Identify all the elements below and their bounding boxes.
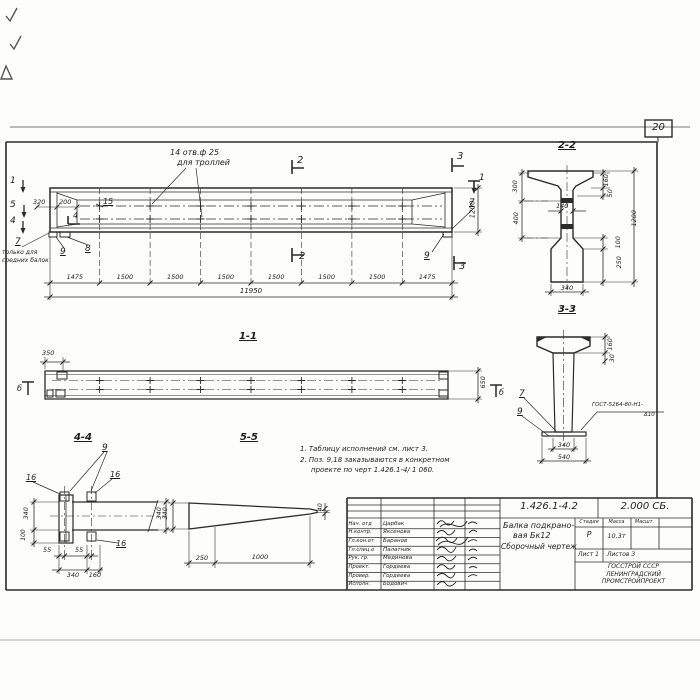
cut-mark-b-right: б <box>499 389 504 397</box>
holes-note-line1: 14 отв.ф 25 <box>170 149 219 157</box>
dim-segment: 1500 <box>360 274 394 281</box>
pos7-note-line1: только для <box>2 250 37 256</box>
drawing-sheet: 20 1 5 4 4 2 2 3 3 1 320 200 15 14 отв.ф… <box>0 0 700 700</box>
pos-label-8: 8 <box>85 245 91 254</box>
section-5-5-title: 5-5 <box>232 433 266 443</box>
signature-marks <box>436 521 477 586</box>
cut-mark-2-bottom: 2 <box>299 252 305 262</box>
dim-400: 400 <box>513 205 520 231</box>
dim-350: 350 <box>42 350 54 357</box>
weld-callout-line2: Δ10 <box>644 413 655 419</box>
org-line-3: ПРОМСТРОЙПРОЕКТ <box>575 579 692 585</box>
dim-segment: 1475 <box>58 274 92 281</box>
dim-340-44-bottom: 340 <box>60 572 86 579</box>
tb-row-name: Бодович <box>383 582 407 588</box>
tb-row-role: Рук. гр. <box>349 556 369 561</box>
dim-30: 30 <box>609 347 616 369</box>
tb-row-role: Нач. отд <box>349 522 372 527</box>
section-1-1-view <box>22 357 502 403</box>
drawing-title-line1: Балка подкрано- <box>503 522 574 530</box>
cut-mark-b-left: б <box>17 385 22 393</box>
corner-marks <box>1 8 21 79</box>
drawing-linework <box>0 0 700 700</box>
tb-row-name: Мединова <box>383 556 412 562</box>
tb-row-role: Н.контр. <box>349 530 372 535</box>
tb-row-name: Яксенова <box>383 530 410 536</box>
section-2-2-title: 2-2 <box>552 141 582 151</box>
weld-callout-line1: ГОСТ-5264-80-Н1- <box>592 403 643 409</box>
dim-200: 200 <box>59 199 71 206</box>
tb-row-role: Провер. <box>349 574 371 579</box>
dim-segment: 1500 <box>108 274 142 281</box>
dim-340-33: 340 <box>549 442 579 449</box>
pos-label-9-33: 9 <box>517 408 523 417</box>
dim-140-web: 140 <box>556 203 568 210</box>
sheets-label: Листов 3 <box>607 552 635 558</box>
section-3-3-view <box>522 330 664 464</box>
dim-340-22: 340 <box>552 285 582 292</box>
doc-number: 1.426.1-4.2 <box>500 502 598 512</box>
dim-320: 320 <box>33 199 45 206</box>
section-1-1-title: 1-1 <box>232 332 264 342</box>
tb-row-name: Царбак <box>383 522 404 528</box>
tb-row-name: Баранов <box>383 539 407 545</box>
section-4-4-title: 4-4 <box>66 433 100 443</box>
mass-header: Масса <box>603 520 630 525</box>
drawing-title-line3: Сборочный чертеж <box>501 543 577 551</box>
pos7-note-line2: средних балок <box>2 258 49 264</box>
pos-label-16-a: 16 <box>26 474 36 482</box>
pos-label-9-right: 9 <box>424 252 430 261</box>
note-line-3: проекте по черт 1.426.1-4/ 1 060. <box>311 467 434 474</box>
dim-540: 540 <box>549 454 579 461</box>
dim-250: 250 <box>616 249 623 275</box>
dim-55-b: 55 <box>75 547 83 554</box>
dim-segment: 1500 <box>259 274 293 281</box>
pos-label-9: 9 <box>60 248 66 257</box>
pos-label-16-c: 16 <box>116 540 126 548</box>
holes-note-line2: для троллей <box>177 159 230 167</box>
pos-label-15: 15 <box>103 198 113 206</box>
sheet-number: 20 <box>645 123 672 133</box>
cut-mark-2-top: 2 <box>297 156 303 166</box>
cut-mark-4-inner: 4 <box>73 212 78 220</box>
section-3-3-title: 3-3 <box>552 305 582 315</box>
dim-total-11950: 11950 <box>231 288 271 295</box>
drawing-title-line2: вая Бк12 <box>513 532 550 540</box>
dim-300: 300 <box>512 173 519 199</box>
pos-label-16-b: 16 <box>110 471 120 479</box>
sheet-label: Лист 1 <box>578 552 599 558</box>
dim-100-44: 100 <box>21 524 27 546</box>
doc-code: 2.000 СБ. <box>598 502 692 512</box>
scale-header: Масшт. <box>631 520 658 525</box>
cut-mark-1-right: 1 <box>479 174 485 183</box>
stage-value: Р <box>576 531 602 539</box>
cut-mark-4-left: 4 <box>10 217 16 226</box>
dim-340-55: 340 <box>162 500 169 526</box>
dim-250-55: 250 <box>189 555 215 562</box>
tb-row-role: Гл.кон.от <box>349 539 374 544</box>
dim-1200-22: 1200 <box>631 204 638 232</box>
pos-label-7-33: 7 <box>519 390 525 399</box>
note-line-2: 2. Поз. 9,18 заказываются в конкретном <box>300 457 450 464</box>
cut-mark-1-left: 1 <box>10 177 16 186</box>
org-line-1: ГОССТРОЙ СССР <box>575 564 692 570</box>
dim-segment: 1500 <box>158 274 192 281</box>
dim-1200-elevation: 1200 <box>470 196 477 224</box>
tb-row-role: Гл.спец.о <box>349 548 375 553</box>
dim-segment: 1500 <box>310 274 344 281</box>
org-line-2: ЛЕНИНГРАДСКИЙ <box>575 572 692 578</box>
dim-segment: 1500 <box>209 274 243 281</box>
dim-40: 40 <box>317 497 324 517</box>
cut-mark-3-top: 3 <box>457 152 463 162</box>
dim-160-44: 160 <box>85 572 105 579</box>
cut-mark-3-bottom: 3 <box>459 262 465 272</box>
stage-header: Стадия <box>576 520 602 525</box>
tb-row-name: Палатник <box>383 548 411 554</box>
section-4-4-view <box>30 452 170 574</box>
mass-value: 10,3т <box>603 533 630 540</box>
tb-row-name: Гордеева <box>383 574 410 580</box>
dim-50: 50 <box>607 182 614 204</box>
pos-label-7: 7 <box>15 238 21 247</box>
dim-650: 650 <box>480 369 487 395</box>
tb-row-role: Проект. <box>349 565 370 570</box>
tb-row-role: Исполн. <box>349 582 371 587</box>
dim-segment: 1475 <box>410 274 444 281</box>
dim-340-44: 340 <box>23 500 30 526</box>
note-line-1: 1. Таблицу исполнений см. лист 3. <box>300 446 428 453</box>
dim-1000: 1000 <box>240 554 280 561</box>
cut-mark-5-left: 5 <box>10 201 16 210</box>
dim-55-a: 55 <box>43 547 51 554</box>
tb-row-name: Гордеева <box>383 565 410 571</box>
pos-label-9-44: 9 <box>102 444 108 453</box>
